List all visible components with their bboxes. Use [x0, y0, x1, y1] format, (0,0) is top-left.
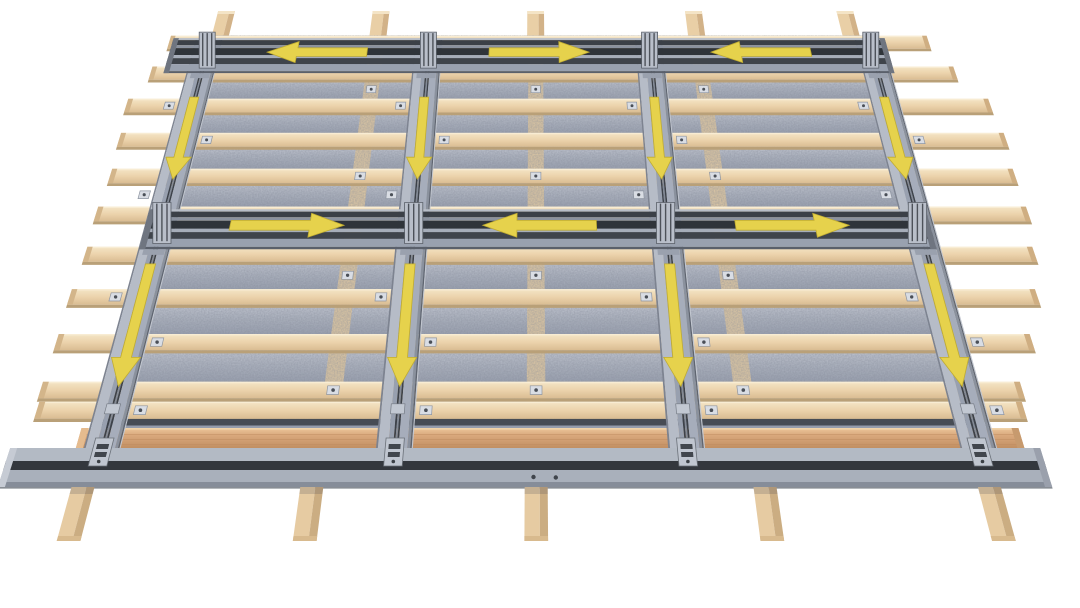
junction-foot-plate [142, 249, 165, 255]
plate-screw [910, 295, 913, 298]
rail-mid-bracket [676, 404, 691, 414]
batten-top-highlight [121, 133, 1004, 134]
batten-top-highlight [43, 382, 1021, 383]
eave-face [0, 470, 1051, 482]
horizontal-rail-band [166, 58, 892, 64]
rafter-tail-shadow [525, 487, 548, 494]
junction-foot-plate [657, 249, 679, 255]
eave-lower-edge [0, 482, 1052, 487]
plate-screw [346, 274, 349, 277]
rafter-stub-top [217, 11, 235, 14]
plate-screw [143, 193, 146, 196]
horizontal-rail-band [172, 40, 887, 45]
horizontal-rail-band [142, 232, 934, 239]
clamp-slot [94, 452, 107, 457]
eave-screw [531, 475, 535, 479]
rafter-tail-end [991, 536, 1016, 541]
plate-screw [168, 104, 171, 107]
plate-screw [155, 340, 158, 343]
clamp-slot [388, 444, 400, 449]
plate-screw [424, 408, 428, 412]
bottom-horizontal-rail [100, 419, 980, 429]
clamp-screw [392, 460, 396, 464]
plate-screw [727, 274, 730, 277]
batten-top-highlight [128, 99, 989, 100]
horizontal-rail-band [164, 64, 894, 71]
plate-screw [714, 174, 717, 177]
rafter-stub-top [836, 11, 854, 14]
eave-profile [0, 448, 1053, 489]
rafter-tail-shadow [754, 487, 778, 494]
bottom-rail-dark [101, 419, 980, 426]
plate-screw [390, 193, 393, 196]
plate-screw [359, 174, 362, 177]
horizontal-rail-band [140, 239, 937, 247]
clamp-slot [972, 444, 985, 449]
batten-top-highlight [112, 169, 1013, 170]
batten-bottom-edge [148, 80, 959, 83]
batten [54, 334, 1035, 350]
plate-screw [742, 388, 746, 392]
rafter-tail [524, 487, 540, 541]
plate-screw [702, 88, 705, 91]
eave-dark-lip [3, 461, 1047, 470]
batten [34, 402, 1027, 419]
plate-screw [370, 88, 373, 91]
batten-bottom-edge [66, 305, 1041, 308]
batten [67, 289, 1040, 305]
roof-mounting-diagram [0, 0, 1080, 608]
plate-screw [534, 388, 538, 392]
eave-plank-face [76, 428, 1025, 449]
plate-screw [710, 408, 714, 412]
plate-screw [114, 295, 117, 298]
batten-top-highlight [71, 289, 1035, 290]
rafter-tail-end [760, 536, 784, 541]
batten [117, 133, 1009, 147]
plate-screw [443, 138, 446, 141]
rafter-tail-side [540, 487, 548, 541]
plate-screw [534, 174, 537, 177]
plate-screw [205, 138, 208, 141]
rafter-stub-top [372, 11, 389, 14]
batten-bottom-edge [123, 113, 994, 116]
junction-foot-plate [643, 73, 662, 78]
plate-screw [534, 274, 537, 277]
plate-screw [379, 295, 382, 298]
junction-foot-plate [914, 249, 937, 255]
rail-mid-bracket [960, 404, 976, 414]
rafter-tail-shadow [978, 487, 1003, 494]
plate-screw [399, 104, 402, 107]
plate-screw [680, 138, 683, 141]
plate-screw [139, 408, 143, 412]
batten-top-highlight [98, 207, 1027, 208]
plate-screw [631, 104, 634, 107]
clamp-slot [96, 444, 109, 449]
rail-mid-bracket [104, 404, 120, 414]
clamp-screw [97, 460, 101, 464]
plank-grain [84, 434, 1017, 435]
rafter-stub-top [527, 11, 544, 14]
batten-top-highlight [171, 36, 928, 37]
plate-screw [702, 340, 705, 343]
clamp-slot [680, 444, 692, 449]
junction-foot-plate [400, 249, 422, 255]
batten-top-highlight [58, 334, 1030, 335]
horizontal-rail-band [139, 247, 937, 249]
clamp-screw [686, 460, 690, 464]
plate-screw [862, 104, 865, 107]
horizontal-rail-band [149, 209, 926, 211]
rafter-tail-shadow [70, 487, 95, 494]
batten-bottom-edge [107, 183, 1019, 186]
rafter-stub-top [685, 11, 702, 14]
clamp-slot [974, 452, 987, 457]
rafter-tail-end [57, 536, 82, 541]
clamp-slot [681, 452, 693, 457]
plate-screw [637, 193, 640, 196]
batten-bottom-edge [82, 262, 1039, 265]
plate-screw [331, 388, 335, 392]
rafter-tails [57, 487, 1016, 541]
clamp-screw [981, 460, 985, 464]
plank-grain [83, 439, 1019, 440]
clamp-slot [388, 452, 400, 457]
plate-screw [918, 138, 921, 141]
plate-screw [884, 193, 887, 196]
rafter-tail-end [293, 536, 317, 541]
batten-bottom-edge [53, 350, 1036, 353]
plate-screw [534, 88, 537, 91]
batten-bottom-edge [116, 147, 1010, 150]
junction-foot-plate [868, 73, 888, 78]
horizontal-rail-band [163, 71, 894, 73]
junction-foot-plate [416, 73, 436, 78]
plate-screw [995, 408, 999, 412]
plank-grain [81, 444, 1020, 445]
horizontal-rail-band [148, 212, 928, 218]
eave-screw [554, 475, 558, 479]
batten-bottom-edge [37, 398, 1026, 401]
eave-plank [76, 428, 1025, 449]
plate-screw [429, 340, 432, 343]
rail-mid-bracket [391, 404, 406, 414]
rafter-tail-shadow [299, 487, 323, 494]
eave-top-flange [6, 448, 1044, 461]
rafter-tail-end [524, 536, 548, 541]
plate-screw [976, 340, 979, 343]
junction-foot-plate [190, 73, 210, 78]
plate-screw [645, 295, 648, 298]
batten-top-highlight [39, 402, 1022, 403]
batten [108, 169, 1018, 183]
horizontal-rail-band [173, 38, 885, 40]
plank-top-highlight [81, 428, 1019, 430]
roof-mounting-illustration [0, 0, 1080, 608]
